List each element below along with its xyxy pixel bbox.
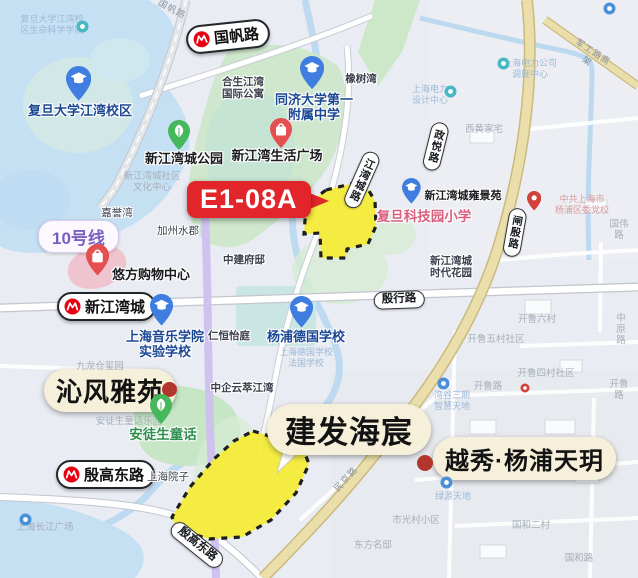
parcel-banner: E1-08A <box>187 181 311 218</box>
project-pill-yuexiu: 越秀·杨浦天玥 <box>433 437 616 480</box>
shanghai-metro-logo-icon <box>64 298 81 315</box>
metro-station-yingaodonglu: 殷高东路 <box>56 460 155 489</box>
line10-badge: 10号线 <box>38 220 119 253</box>
project-pill-qinfengyayuan: 沁风雅苑 <box>44 369 176 412</box>
station-name: 新江湾城 <box>85 296 145 317</box>
shanghai-metro-logo-icon <box>192 30 211 49</box>
station-name: 国帆路 <box>213 23 260 49</box>
project-pill-jianfahaichen: 建发海宸 <box>267 404 431 455</box>
qinfeng-location-dot <box>162 382 177 397</box>
map-base-layer <box>0 0 638 578</box>
map-canvas: 国帆路 新江湾城 殷高东路 E1-08A 10号线 沁风雅苑 建发海宸 越秀·杨… <box>0 0 638 578</box>
metro-station-xinjiangwancheng: 新江湾城 <box>57 292 156 321</box>
station-name: 殷高东路 <box>84 464 144 485</box>
shanghai-metro-logo-icon <box>63 466 80 483</box>
yuexiu-location-dot <box>417 455 433 471</box>
